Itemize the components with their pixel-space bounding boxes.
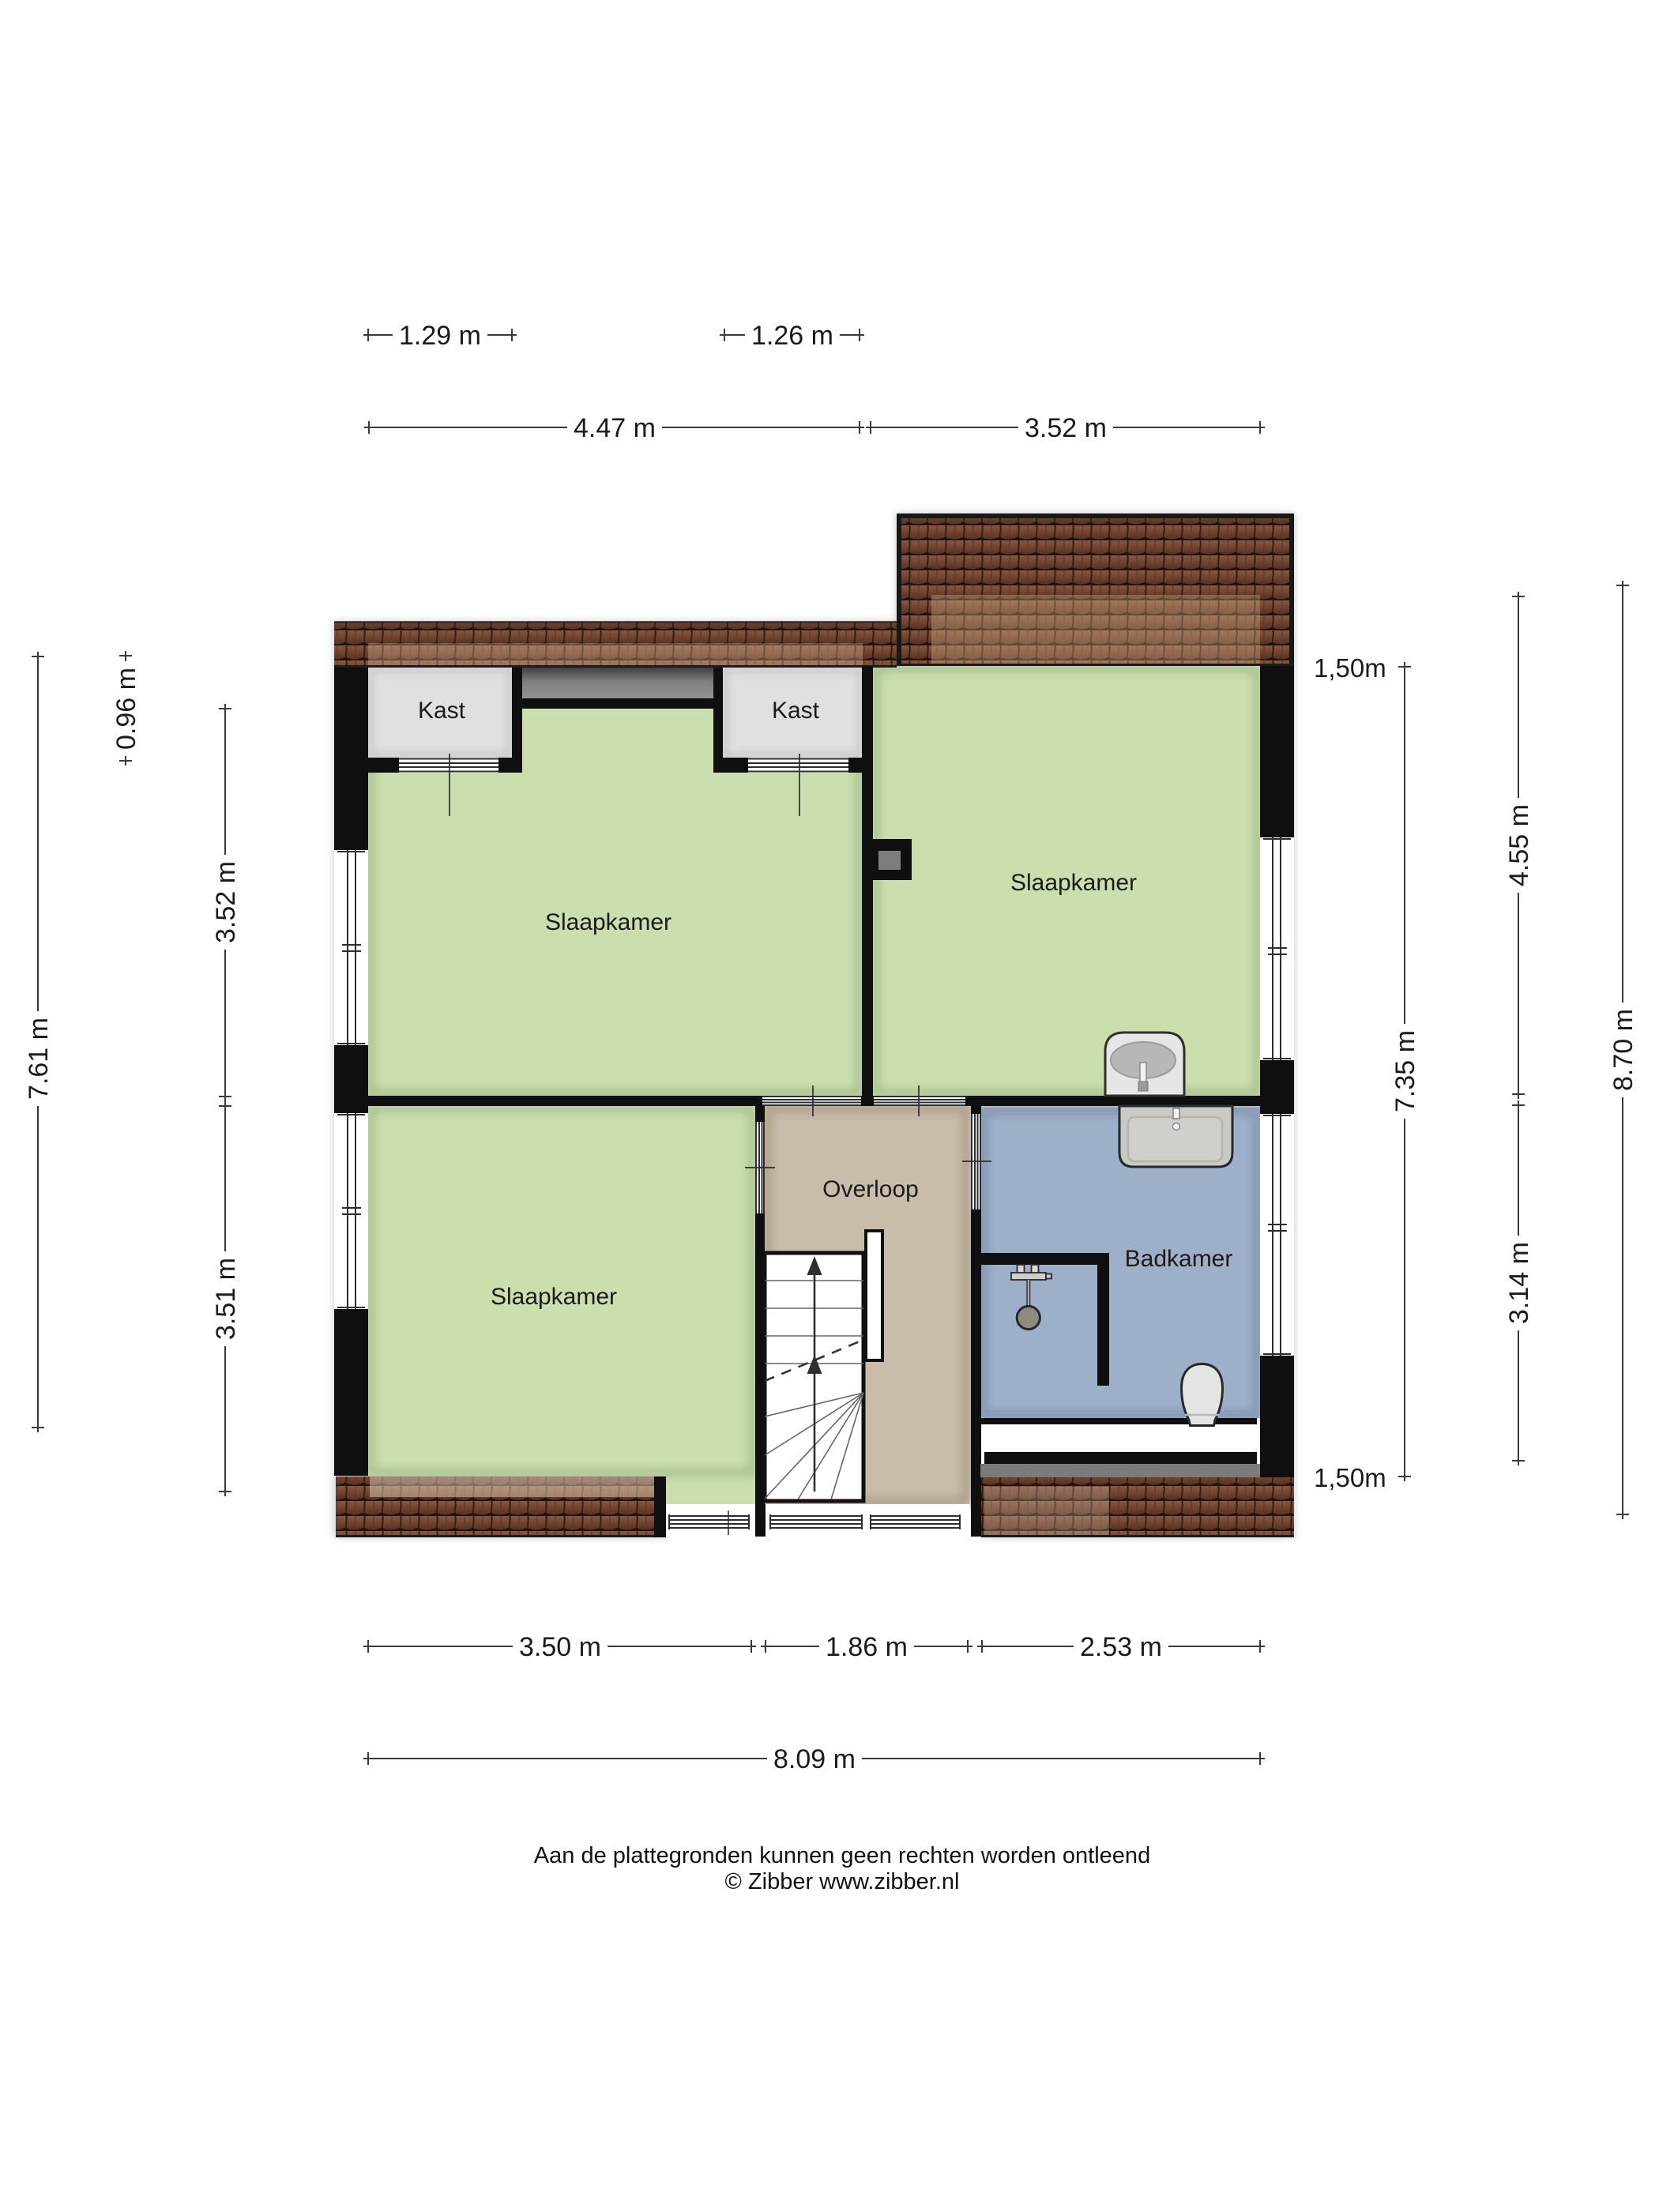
svg-text:3.50 m: 3.50 m	[519, 1632, 601, 1662]
svg-text:3.52 m: 3.52 m	[1025, 413, 1107, 443]
svg-text:8.09 m: 8.09 m	[773, 1744, 856, 1774]
svg-text:Badkamer: Badkamer	[1125, 1246, 1233, 1272]
svg-text:1,50m: 1,50m	[1314, 1463, 1386, 1492]
svg-text:3.14 m: 3.14 m	[1504, 1242, 1534, 1324]
svg-text:1,50m: 1,50m	[1314, 653, 1386, 683]
svg-text:1.86 m: 1.86 m	[826, 1632, 908, 1662]
svg-text:Kast: Kast	[772, 698, 820, 724]
svg-text:4.55 m: 4.55 m	[1504, 804, 1534, 886]
svg-text:8.70 m: 8.70 m	[1608, 1009, 1638, 1091]
svg-text:7.61 m: 7.61 m	[24, 1018, 54, 1100]
svg-text:Slaapkamer: Slaapkamer	[1010, 870, 1137, 896]
svg-text:Overloop: Overloop	[822, 1176, 919, 1202]
svg-text:© Zibber www.zibber.nl: © Zibber www.zibber.nl	[725, 1869, 960, 1894]
svg-text:Aan de plattegronden kunnen ge: Aan de plattegronden kunnen geen rechten…	[534, 1843, 1150, 1868]
svg-text:1.29 m: 1.29 m	[399, 321, 481, 351]
svg-text:3.51 m: 3.51 m	[211, 1258, 241, 1340]
svg-text:3.52 m: 3.52 m	[211, 861, 241, 943]
svg-text:2.53 m: 2.53 m	[1080, 1632, 1162, 1662]
svg-text:4.47 m: 4.47 m	[574, 413, 656, 443]
svg-text:Kast: Kast	[418, 698, 466, 724]
svg-text:7.35 m: 7.35 m	[1390, 1030, 1420, 1112]
svg-text:Slaapkamer: Slaapkamer	[491, 1284, 617, 1310]
svg-text:1.26 m: 1.26 m	[751, 321, 833, 351]
svg-text:0.96 m: 0.96 m	[111, 668, 141, 750]
svg-text:Slaapkamer: Slaapkamer	[545, 909, 671, 935]
